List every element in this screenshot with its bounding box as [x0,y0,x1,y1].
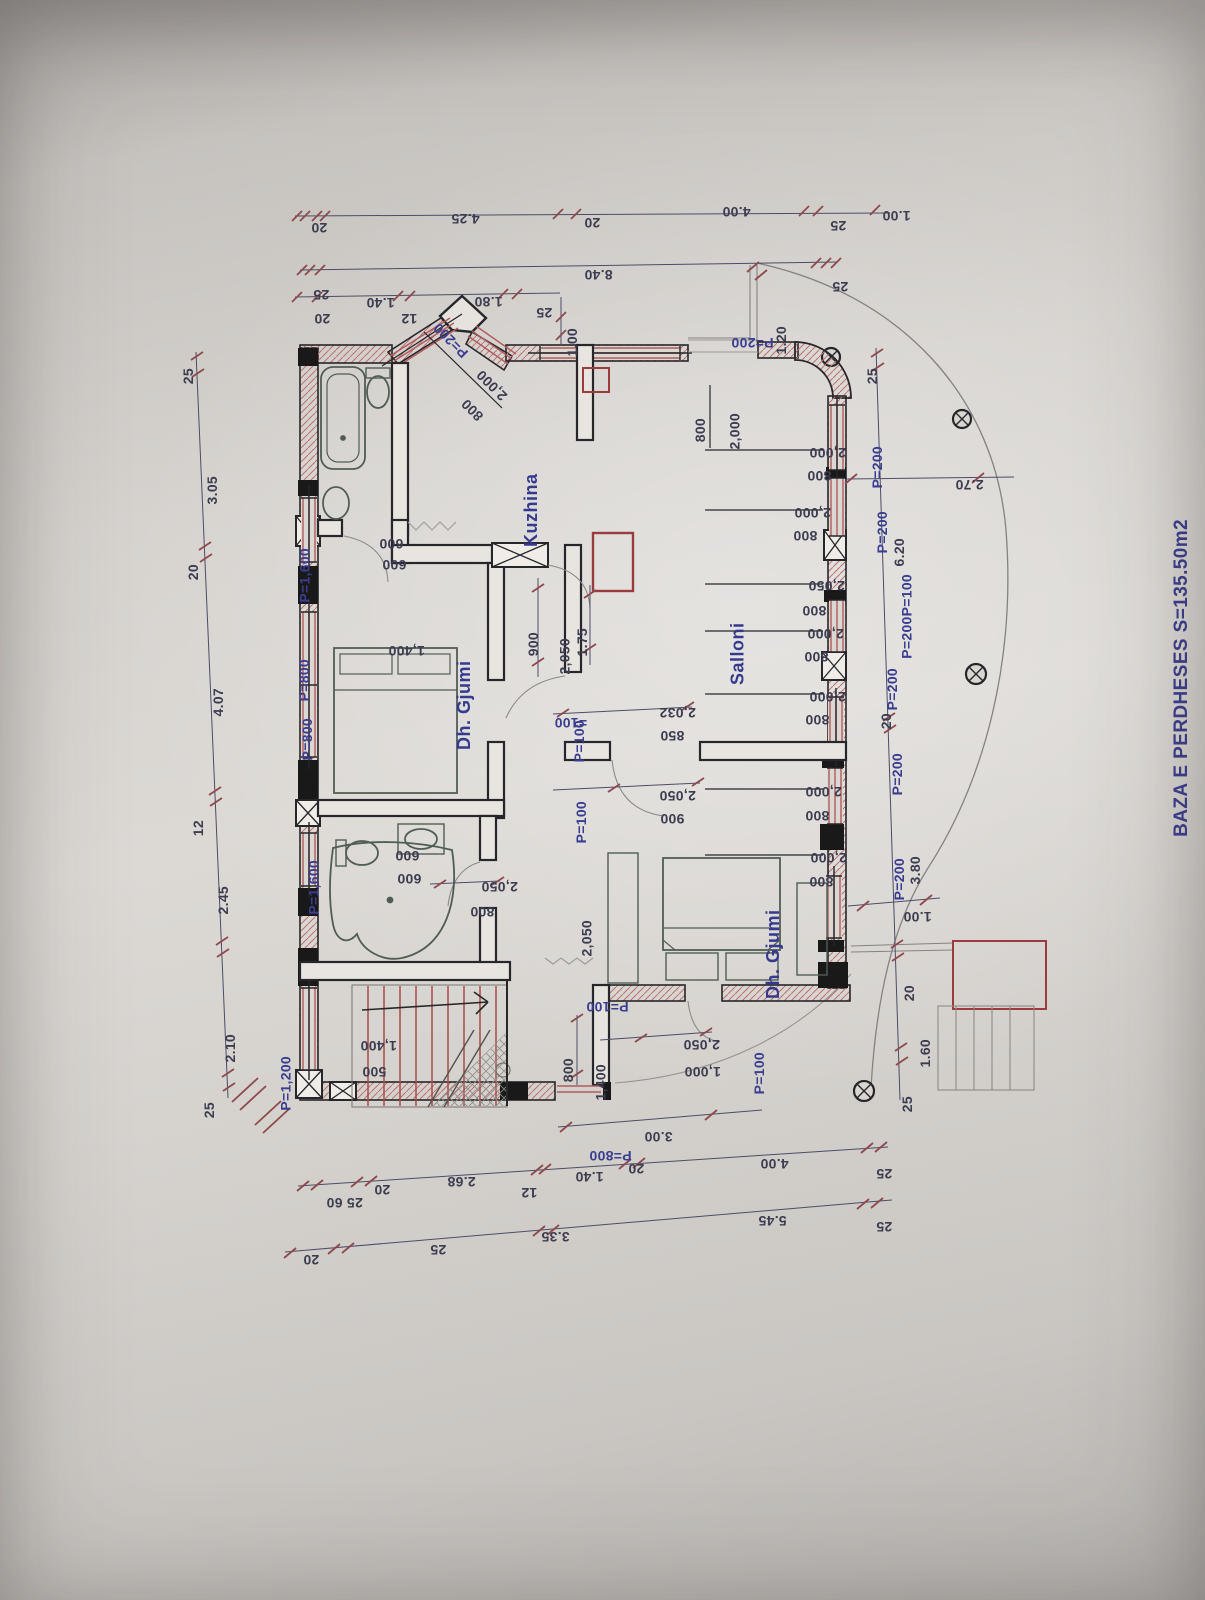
annotation-label: P=200P=100 [898,574,914,659]
dimension-label: 3.80 [907,856,923,884]
dimension-label: 25 [536,305,552,321]
dimension-label: 2,050 [683,1037,720,1053]
annotation-label: P=100 [586,999,628,1015]
dimension-label: 600 [395,848,419,864]
annotation-label: P=200 [884,668,900,710]
annotation-label: P=200 [891,858,907,900]
dimension-label: 25 [864,368,880,384]
dimension-label: 25 [876,1219,892,1235]
dimension-label: 1.00 [882,208,910,224]
dimension-label: 800 [805,808,829,824]
dimension-label: 1,400 [360,1038,397,1054]
dimension-label: 1,400 [388,643,425,659]
room-label: Kuzhina [521,474,542,548]
dimension-label: 600 [379,536,403,552]
dimension-label: 20 [314,311,330,327]
dimension-label: 25 [201,1102,217,1118]
dimension-label: 2,050 [578,920,594,957]
annotation-label: P=200 [731,335,773,351]
room-label: Salloni [727,623,748,686]
room-label: Dh. Gjumi [763,910,784,1000]
dimension-label: 3.35 [541,1229,569,1245]
dimension-label: 25 60 [326,1195,363,1211]
dimension-label: 800 [458,396,486,424]
annotation-label: P=100 [573,801,589,843]
dimension-label: 12 [190,820,206,836]
dimension-label: 800 [793,528,817,544]
dimension-label: 600 [397,871,421,887]
dimension-label: 8.40 [584,267,612,283]
dimension-label: 12 [401,311,417,327]
dimension-label: 2.10 [222,1034,238,1062]
dimension-label: 1.40 [366,295,394,311]
dimension-label: 25 [876,1166,892,1182]
dimension-label: 850 [660,728,684,744]
dimension-label: 4.25 [451,211,479,227]
dimension-label: 1.60 [917,1039,933,1067]
annotation-label: P=800 [299,718,315,760]
dimension-label: 20 [901,985,917,1001]
dimension-label: 800 [805,712,829,728]
annotation-label: P=200 [430,320,471,361]
dimension-label: 20 [878,713,894,729]
annotation-label: P=200 [874,511,890,553]
dimension-label: 500 [362,1064,386,1080]
dimension-label: 2,000 [809,689,846,705]
dimension-label: 25 [180,368,196,384]
dimension-label: 6.20 [891,538,907,566]
dimension-label: 2.45 [215,886,231,914]
dimension-label: 20 [374,1182,390,1198]
dimension-label: 1.40 [575,1169,603,1185]
dimension-label: 2,000 [794,505,831,521]
dimension-label: 4.00 [722,204,750,220]
annotation-label: P=800 [296,659,312,701]
dimension-label: 2,032 [659,705,696,721]
dimension-label: 25 [430,1242,446,1258]
annotation-label: P=1,600 [305,860,321,915]
dimension-label: 2,000 [810,850,847,866]
dimension-label: 2,000 [809,445,846,461]
dimension-label: 12 [521,1185,537,1201]
dimension-label: 1.00 [564,328,580,356]
dimension-label: 900 [660,811,684,827]
dimension-label: 2.68 [447,1174,475,1190]
annotation-label: P=1,600 [296,548,312,603]
dimension-label: 2,050 [659,788,696,804]
dimension-label: 2,000 [807,626,844,642]
dimension-label: 2,050 [481,879,518,895]
room-label: Dh. Gjumi [454,661,475,751]
dimension-label: 3.05 [204,476,220,504]
dimension-label: 800 [470,904,494,920]
dimension-label: 800 [692,418,708,442]
dimension-label: 25 [830,218,846,234]
dimension-label: 2,050 [556,638,572,675]
dimension-label: 800 [802,603,826,619]
dimension-label: 800 [807,468,831,484]
dimension-label: 1.75 [574,628,590,656]
dimension-label: 2.70 [955,477,983,493]
dimension-label: 1.00 [903,909,931,925]
dimension-label: 20 [311,220,327,236]
dimension-label: 600 [382,557,406,573]
annotation-label: P=200 [869,446,885,488]
dimension-label: 20 [185,564,201,580]
dimension-label: 20 [628,1161,644,1177]
dimension-label: 800 [809,874,833,890]
dimension-label: 25 [832,279,848,295]
dimension-label: 4.07 [210,688,226,716]
dimension-label: 1,000 [684,1064,721,1080]
annotation-label: P=1,200 [277,1056,293,1111]
dimension-label: 1.20 [773,326,789,354]
dimension-label: 800 [804,649,828,665]
annotation-label: P=200 [889,753,905,795]
dimension-label: 800 [560,1058,576,1082]
dimension-label: 2,050 [808,578,845,594]
dimension-label: 2,000 [805,784,842,800]
drawing-title: BAZA E PERDHESES S=135.50m2 [1171,519,1193,837]
annotation-label: P=100 [571,720,587,762]
dimension-label: 25 [313,287,329,303]
dimension-label: 1,400 [592,1064,608,1101]
dimension-label: 4.00 [760,1156,788,1172]
dimension-label: 1.80 [474,294,502,310]
dimension-label: 3.00 [644,1129,672,1145]
dimension-label: 5.45 [758,1213,786,1229]
annotation-label: P=800 [589,1148,631,1164]
dimension-label: 25 [899,1096,915,1112]
annotation-label: P=100 [751,1052,767,1094]
dimension-label: 20 [303,1252,319,1268]
floor-plan-photo: 204.25204.00251.008.402525201.40121.8025… [0,0,1205,1600]
dimension-label: 2,000 [726,413,742,450]
dimension-label: 2,000 [473,367,510,404]
dimension-label: 900 [525,632,541,656]
labels-layer: 204.25204.00251.008.402525201.40121.8025… [0,0,1205,1600]
dimension-label: 20 [584,215,600,231]
floor-plan-drawing: 204.25204.00251.008.402525201.40121.8025… [0,0,1205,1600]
